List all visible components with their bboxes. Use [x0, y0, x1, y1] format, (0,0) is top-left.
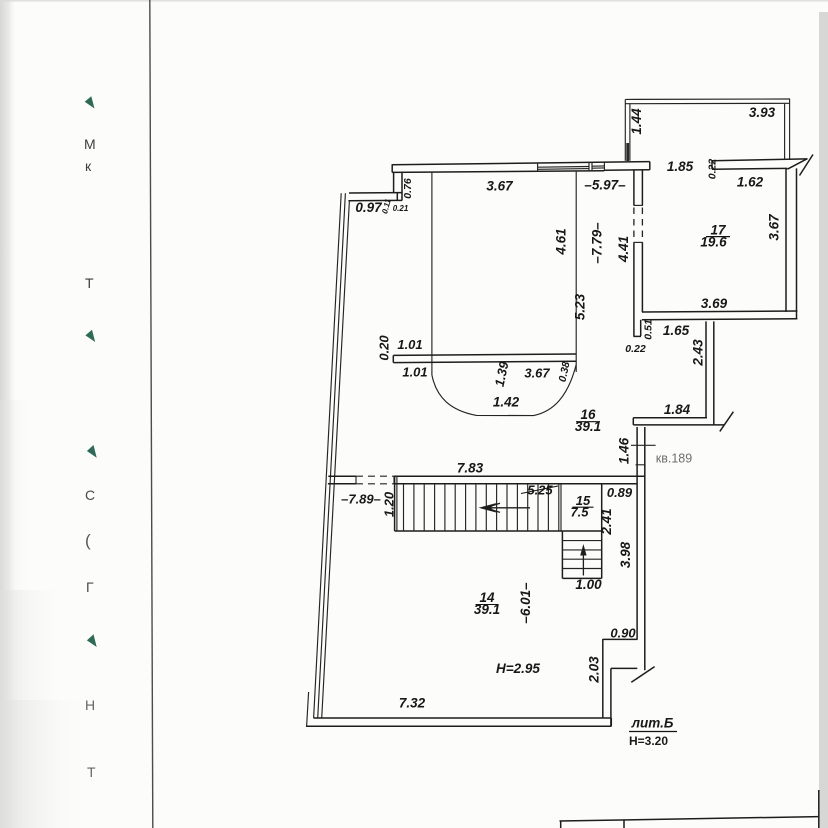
svg-text:(: ( [85, 531, 91, 550]
svg-text:3.93: 3.93 [749, 105, 776, 120]
svg-text:19.6: 19.6 [700, 235, 727, 250]
svg-text:3.67: 3.67 [767, 213, 782, 241]
svg-text:Г: Г [86, 579, 94, 595]
svg-text:4.41: 4.41 [616, 236, 631, 263]
svg-text:Н: Н [85, 697, 95, 713]
svg-text:3.98: 3.98 [618, 541, 633, 568]
svg-text:1.20: 1.20 [382, 491, 397, 517]
svg-text:H=2.95: H=2.95 [496, 661, 540, 676]
svg-text:2.43: 2.43 [691, 339, 706, 367]
svg-text:1.84: 1.84 [664, 402, 691, 417]
svg-text:3.67: 3.67 [486, 179, 514, 194]
svg-text:0.22: 0.22 [625, 343, 646, 355]
svg-text:7.5: 7.5 [570, 505, 589, 520]
svg-text:Т: Т [87, 764, 96, 780]
svg-text:кв.189: кв.189 [656, 452, 692, 466]
svg-text:3.69: 3.69 [701, 296, 728, 311]
svg-text:5.23: 5.23 [573, 293, 588, 320]
svg-text:0.90: 0.90 [610, 626, 636, 641]
svg-text:1.65: 1.65 [663, 323, 690, 338]
svg-text:0.97: 0.97 [355, 200, 383, 215]
svg-text:1.85: 1.85 [667, 159, 694, 174]
svg-text:0.20: 0.20 [377, 335, 392, 361]
svg-text:0.76: 0.76 [402, 178, 414, 199]
svg-text:лит.Б: лит.Б [631, 716, 674, 731]
svg-text:0.21: 0.21 [393, 204, 409, 213]
svg-text:–5.97–: –5.97– [584, 178, 626, 193]
svg-text:–7.79–: –7.79– [590, 222, 605, 264]
svg-text:1.01: 1.01 [397, 337, 422, 352]
svg-text:2.41: 2.41 [599, 508, 614, 535]
svg-text:7.32: 7.32 [399, 696, 426, 711]
svg-text:М: М [84, 136, 96, 152]
svg-text:1.01: 1.01 [402, 365, 427, 380]
svg-text:1.62: 1.62 [737, 175, 764, 190]
svg-text:2.03: 2.03 [587, 656, 602, 684]
svg-text:–7.89–: –7.89– [341, 492, 381, 507]
svg-text:4.61: 4.61 [554, 228, 569, 255]
svg-text:1.44: 1.44 [629, 108, 644, 135]
svg-text:1.42: 1.42 [493, 395, 520, 410]
svg-text:3.67: 3.67 [524, 366, 550, 381]
svg-text:–6.01–: –6.01– [518, 582, 533, 624]
svg-text:7.83: 7.83 [457, 461, 484, 476]
svg-text:39.1: 39.1 [474, 602, 500, 617]
svg-text:0.89: 0.89 [607, 485, 633, 500]
svg-text:С: С [85, 487, 95, 503]
svg-text:1.00: 1.00 [575, 577, 602, 592]
svg-text:к: к [85, 158, 92, 174]
svg-text:0.51: 0.51 [643, 319, 655, 340]
svg-text:Т: Т [85, 275, 94, 291]
svg-text:1.46: 1.46 [617, 437, 632, 464]
svg-text:Н=3.20: Н=3.20 [629, 734, 668, 748]
svg-text:39.1: 39.1 [575, 419, 601, 434]
svg-text:0.22: 0.22 [707, 159, 719, 180]
